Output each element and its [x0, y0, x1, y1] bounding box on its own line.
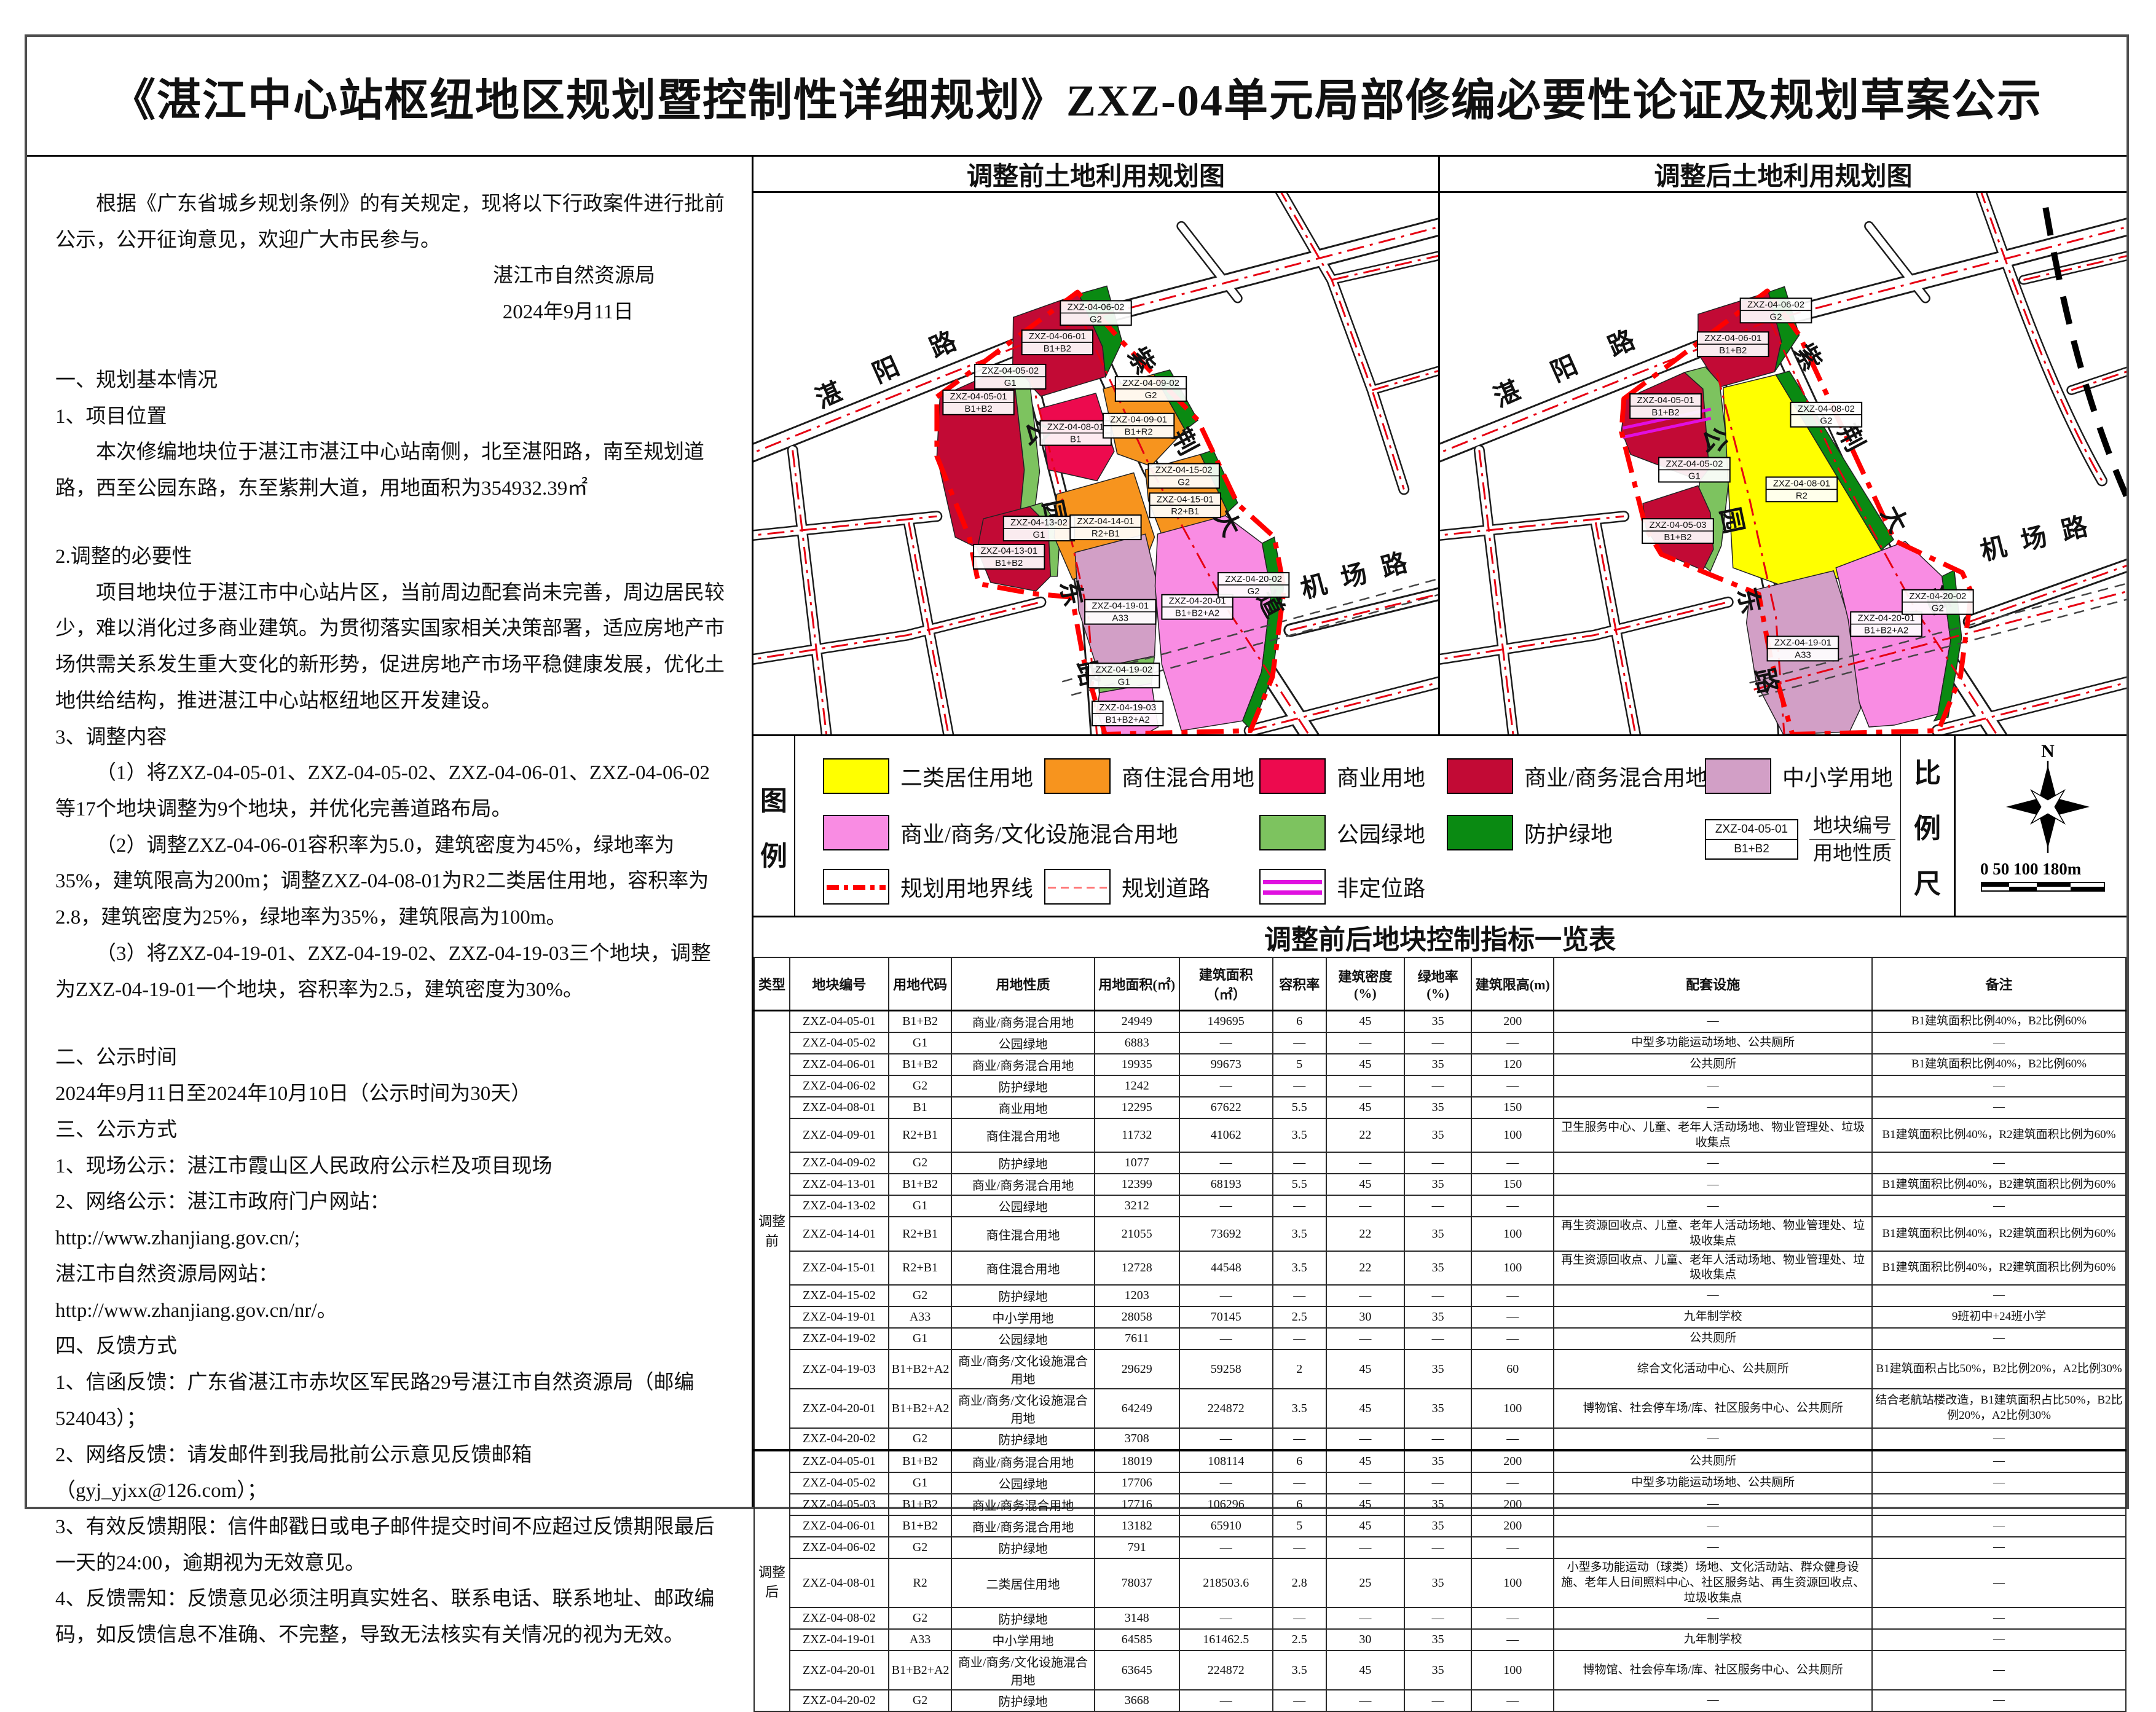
cell: 100 — [1471, 1389, 1554, 1428]
content: 根据《广东省城乡规划条例》的有关规定，现将以下行政案件进行批前公示，公开征询意见… — [27, 155, 2126, 1507]
cell: 6 — [1273, 1450, 1326, 1472]
legend-item: 公园绿地 — [1259, 815, 1425, 850]
cell: 防护绿地 — [951, 1075, 1094, 1097]
cell: — — [1326, 1428, 1404, 1450]
cell: 45 — [1326, 1450, 1404, 1472]
cell: 商业/商务混合用地 — [951, 1054, 1094, 1075]
sample-plot-use: B1+B2 — [1706, 840, 1797, 858]
cell: ZXZ-04-08-02 — [790, 1608, 889, 1629]
cell: — — [1872, 1428, 2126, 1450]
cell: G2 — [889, 1690, 952, 1711]
cell: 106296 — [1179, 1494, 1273, 1515]
parcel-label: ZXZ-04-09-02 — [1122, 378, 1179, 388]
cell: B1建筑面积比例40%，R2建筑面积比例为60% — [1872, 1217, 2126, 1251]
cell: — — [1471, 1032, 1554, 1054]
cell: 200 — [1471, 1011, 1554, 1033]
cell: — — [1404, 1608, 1471, 1629]
caption-land-use: 用地性质 — [1813, 840, 1892, 866]
scale-title-char: 尺 — [1914, 862, 1941, 901]
cell: 中小学用地 — [951, 1306, 1094, 1328]
legend-item-label: 商业/商务混合用地 — [1524, 760, 1707, 792]
cell: — — [1554, 1075, 1872, 1097]
cell: — — [1471, 1152, 1554, 1174]
parcel-label: ZXZ-04-05-03 — [1649, 520, 1706, 530]
parcel-label: ZXZ-04-19-02 — [1095, 664, 1152, 675]
cell: G1 — [889, 1032, 952, 1054]
cell: 公园绿地 — [951, 1328, 1094, 1349]
cell: G1 — [889, 1328, 952, 1349]
table-row: ZXZ-04-20-01B1+B2+A2商业/商务/文化设施混合用地636452… — [754, 1651, 2126, 1690]
cell: 25 — [1326, 1558, 1404, 1608]
cell: — — [1179, 1428, 1273, 1450]
cell: 公园绿地 — [951, 1032, 1094, 1054]
table-row: ZXZ-04-14-01R2+B1商住混合用地21055736923.52235… — [754, 1217, 2126, 1251]
north-label: N — [2041, 741, 2055, 761]
parcel-label: ZXZ-04-20-02 — [1225, 574, 1282, 584]
cell: B1建筑面积比例40%，B2比例60% — [1872, 1054, 2126, 1075]
cell: 45 — [1326, 1651, 1404, 1690]
parcel-label: ZXZ-04-15-01 — [1157, 494, 1214, 505]
cell: 100 — [1471, 1651, 1554, 1690]
parcel-label: ZXZ-04-08-02 — [1798, 404, 1855, 414]
cell: 2.5 — [1273, 1629, 1326, 1651]
cell: ZXZ-04-05-01 — [790, 1011, 889, 1033]
cell: ZXZ-04-20-02 — [790, 1428, 889, 1450]
header-cell: 建筑限高(m) — [1471, 957, 1554, 1011]
cell: 108114 — [1179, 1450, 1273, 1472]
legend-title-char: 图 — [760, 779, 787, 818]
map-title-after: 调整后土地利用规划图 — [1440, 157, 2126, 193]
cell: ZXZ-04-19-01 — [790, 1629, 889, 1651]
cell: R2 — [889, 1558, 952, 1608]
table-row: ZXZ-04-09-01R2+B1商住混合用地11732410623.52235… — [754, 1118, 2126, 1152]
parcel-label: ZXZ-04-13-02 — [1010, 517, 1068, 528]
cell: — — [1554, 1515, 1872, 1537]
cell: 100 — [1471, 1251, 1554, 1285]
parcel-label: B1+B2 — [1044, 344, 1071, 354]
table-row: ZXZ-04-13-01B1+B2商业/商务混合用地12399681935.54… — [754, 1174, 2126, 1195]
table-row: ZXZ-04-19-01A33中小学用地28058701452.53035—九年… — [754, 1306, 2126, 1328]
cell: ZXZ-04-06-02 — [790, 1075, 889, 1097]
cell: ZXZ-04-20-02 — [790, 1690, 889, 1711]
cell: 45 — [1326, 1097, 1404, 1118]
cell: 3148 — [1095, 1608, 1179, 1629]
cell: 35 — [1404, 1011, 1471, 1033]
spacer — [55, 331, 726, 363]
boundary-line-sample — [823, 869, 889, 905]
cell: 35 — [1404, 1097, 1471, 1118]
legend-item-label: 非定位路 — [1337, 871, 1425, 903]
header-cell: 地块编号 — [790, 957, 889, 1011]
cell: — — [1326, 1032, 1404, 1054]
cell: G1 — [889, 1472, 952, 1494]
cell: — — [1326, 1195, 1404, 1217]
cell: B1+B2 — [889, 1450, 952, 1472]
cell: — — [1179, 1152, 1273, 1174]
legend-item: 商住混合用地 — [1044, 758, 1254, 794]
cell: 再生资源回收点、儿童、老年人活动场地、物业管理处、垃圾收集点 — [1554, 1251, 1872, 1285]
table-row: ZXZ-04-09-02G2防护绿地1077——————— — [754, 1152, 2126, 1174]
cell: 45 — [1326, 1054, 1404, 1075]
table-row: ZXZ-04-05-02G1公园绿地6883—————中型多功能运动场地、公共厕… — [754, 1032, 2126, 1054]
cell: ZXZ-04-15-01 — [790, 1251, 889, 1285]
parcel-label: ZXZ-04-14-01 — [1077, 516, 1135, 527]
cell: 中小学用地 — [951, 1629, 1094, 1651]
cell: 24949 — [1095, 1011, 1179, 1033]
cell: 45 — [1326, 1389, 1404, 1428]
cell: — — [1273, 1428, 1326, 1450]
cell: 45 — [1326, 1494, 1404, 1515]
legend-panel: 图例 二类居住用地 商住混合用地 商业用地 商业/商务混合用地 中小学用地 商业… — [753, 736, 1900, 916]
cell: — — [1872, 1651, 2126, 1690]
cell: ZXZ-04-06-01 — [790, 1054, 889, 1075]
cell: — — [1273, 1472, 1326, 1494]
cell: — — [1273, 1285, 1326, 1306]
legend-item-label: 防护绿地 — [1524, 817, 1613, 849]
legend-item: 中小学用地 — [1705, 758, 1893, 794]
table-row: ZXZ-04-06-02G2防护绿地791——————— — [754, 1537, 2126, 1558]
cell: 12295 — [1095, 1097, 1179, 1118]
cell: 41062 — [1179, 1118, 1273, 1152]
notice-line: 项目地块位于湛江市中心站片区，当前周边配套尚未完善，周边居民较少，难以消化过多商… — [55, 575, 726, 720]
parcel-label: ZXZ-04-06-01 — [1704, 333, 1761, 344]
cell: B1+B2 — [889, 1054, 952, 1075]
table-title: 调整前后地块控制指标一览表 — [753, 917, 2126, 957]
cell: 防护绿地 — [951, 1690, 1094, 1711]
cell: 5.5 — [1273, 1097, 1326, 1118]
cell: — — [1179, 1195, 1273, 1217]
cell: G2 — [889, 1075, 952, 1097]
cell: 3.5 — [1273, 1118, 1326, 1152]
cell: ZXZ-04-05-03 — [790, 1494, 889, 1515]
cell: 35 — [1404, 1174, 1471, 1195]
parcel-label: B1+B2+A2 — [1864, 626, 1908, 636]
protective-green-swatch — [1447, 815, 1513, 850]
residential-swatch — [823, 758, 889, 794]
parcel-label: G2 — [1820, 416, 1832, 426]
cell: 防护绿地 — [951, 1428, 1094, 1450]
notice-line: 湛江市自然资源局网站： — [55, 1257, 726, 1293]
legend-item: 规划道路 — [1044, 869, 1210, 905]
cell: 70145 — [1179, 1306, 1273, 1328]
cell: B1建筑面积比例40%，R2建筑面积比例为60% — [1872, 1251, 2126, 1285]
table-row: ZXZ-04-06-01B1+B2商业/商务混合用地13182659105453… — [754, 1515, 2126, 1537]
cell: — — [1326, 1690, 1404, 1711]
caption-plot-number: 地块编号 — [1809, 812, 1895, 840]
notice-line: 根据《广东省城乡规划条例》的有关规定，现将以下行政案件进行批前公示，公开征询意见… — [55, 186, 726, 258]
cell: 防护绿地 — [951, 1537, 1094, 1558]
cell: — — [1554, 1174, 1872, 1195]
legend-item-label: 规划道路 — [1122, 871, 1210, 903]
cell: ZXZ-04-20-01 — [790, 1389, 889, 1428]
map-before: 湛阳路 紫荆大道 公园东路 机场路 ZXZ-04-06-02G2 ZXZ-04-… — [753, 193, 1438, 734]
cell: — — [1471, 1690, 1554, 1711]
cell: 商住混合用地 — [951, 1251, 1094, 1285]
cell: G1 — [889, 1195, 952, 1217]
cell: 7611 — [1095, 1328, 1179, 1349]
cell: 5.5 — [1273, 1174, 1326, 1195]
table-row: ZXZ-04-08-02G2防护绿地3148——————— — [754, 1608, 2126, 1629]
row-group-type: 调整后 — [754, 1450, 790, 1711]
parcel-label: B1+B2+A2 — [1106, 715, 1150, 725]
cell: — — [1326, 1285, 1404, 1306]
header-cell: 建筑面积（㎡） — [1179, 957, 1273, 1011]
parcel-label: B1+B2 — [995, 558, 1023, 568]
cell: 44548 — [1179, 1251, 1273, 1285]
legend-item-label: 商住混合用地 — [1122, 760, 1254, 792]
cell: 3708 — [1095, 1428, 1179, 1450]
cell: — — [1554, 1152, 1872, 1174]
parcel-label: R2+B1 — [1092, 528, 1120, 539]
cell: G2 — [889, 1537, 952, 1558]
notice-heading: 二、公示时间 — [55, 1040, 726, 1076]
cell: 公园绿地 — [951, 1472, 1094, 1494]
cell: — — [1404, 1328, 1471, 1349]
cell: — — [1872, 1515, 2126, 1537]
notice-line: 2、网络公示：湛江市政府门户网站： — [55, 1184, 726, 1220]
cell: — — [1554, 1011, 1872, 1033]
cell: 218503.6 — [1179, 1558, 1273, 1608]
cell: 二类居住用地 — [951, 1558, 1094, 1608]
cell: 35 — [1404, 1558, 1471, 1608]
cell: — — [1273, 1690, 1326, 1711]
legend-item: 商业/商务/文化设施混合用地 — [823, 815, 1178, 850]
parcel-label: ZXZ-04-20-01 — [1169, 596, 1226, 607]
parcel-label: G2 — [1770, 312, 1782, 322]
cell: — — [1554, 1537, 1872, 1558]
parcel-label: ZXZ-04-05-02 — [1666, 458, 1723, 469]
cell: 224872 — [1179, 1651, 1273, 1690]
header-cell: 配套设施 — [1554, 957, 1872, 1011]
legend-item: 规划用地界线 — [823, 869, 1033, 905]
cell: 200 — [1471, 1494, 1554, 1515]
school-swatch — [1705, 758, 1771, 794]
notice-line: 2024年9月11日至2024年10月10日（公示时间为30天） — [55, 1076, 726, 1112]
cell: B1建筑面积比例40%，R2建筑面积比例为60% — [1872, 1118, 2126, 1152]
cell: ZXZ-04-08-01 — [790, 1558, 889, 1608]
parcel-label: G1 — [1688, 471, 1701, 481]
planned-road-sample — [1044, 869, 1111, 905]
notice-line: （3）将ZXZ-04-19-01、ZXZ-04-19-02、ZXZ-04-19-… — [55, 936, 726, 1008]
cell: 3.5 — [1273, 1217, 1326, 1251]
cell: 161462.5 — [1179, 1629, 1273, 1651]
notice-heading: 一、规划基本情况 — [55, 363, 726, 399]
cell: 45 — [1326, 1011, 1404, 1033]
notice-date: 2024年9月11日 — [55, 294, 726, 331]
cell: 小型多功能运动（球类）场地、文化活动站、群众健身设施、老年人日间照料中心、社区服… — [1554, 1558, 1872, 1608]
cell: B1+B2 — [889, 1494, 952, 1515]
cell: 22 — [1326, 1251, 1404, 1285]
cell: ZXZ-04-05-02 — [790, 1472, 889, 1494]
cell: 35 — [1404, 1651, 1471, 1690]
cell: — — [1179, 1472, 1273, 1494]
cell: 45 — [1326, 1515, 1404, 1537]
table-region: 调整前后地块控制指标一览表 类型地块编号用地代码用地性质用地面积(㎡)建筑面积（… — [753, 917, 2126, 1507]
cell: G2 — [889, 1428, 952, 1450]
cell: — — [1326, 1537, 1404, 1558]
cell: — — [1471, 1075, 1554, 1097]
cell: 5 — [1273, 1515, 1326, 1537]
parcel-label: B1+B2 — [964, 404, 992, 414]
cell — [1872, 1494, 2126, 1515]
cell: 200 — [1471, 1450, 1554, 1472]
cell: 博物馆、社会停车场/库、社区服务中心、公共厕所 — [1554, 1389, 1872, 1428]
header-cell: 用地代码 — [889, 957, 952, 1011]
legend-row: 图例 二类居住用地 商住混合用地 商业用地 商业/商务混合用地 中小学用地 商业… — [753, 736, 2126, 917]
cell: B1+B2+A2 — [889, 1651, 952, 1690]
cell: — — [1872, 1032, 2126, 1054]
cell: G2 — [889, 1285, 952, 1306]
cell: — — [1179, 1690, 1273, 1711]
cell: 商业用地 — [951, 1097, 1094, 1118]
cell: 21055 — [1095, 1217, 1179, 1251]
legend-item-label: 二类居住用地 — [900, 760, 1033, 792]
parcel-label: B1+B2 — [1719, 345, 1747, 356]
map-after: 湛阳路 紫荆大道 公园东路 机场路 ZXZ-04-06-02G2 ZXZ-04-… — [1440, 193, 2126, 734]
notice-line: 3、有效反馈期限：信件邮戳日或电子邮件提交时间不应超过反馈期限最后一天的24:0… — [55, 1509, 726, 1581]
cell: 35 — [1404, 1217, 1471, 1251]
cell: — — [1471, 1608, 1554, 1629]
cell: — — [1554, 1608, 1872, 1629]
cell: 45 — [1326, 1349, 1404, 1389]
cell: 九年制学校 — [1554, 1629, 1872, 1651]
cell: B1+B2 — [889, 1011, 952, 1033]
parcel-label: G2 — [1932, 603, 1944, 614]
cell: 65910 — [1179, 1515, 1273, 1537]
legend-item: 商业/商务混合用地 — [1447, 758, 1707, 794]
cell: — — [1471, 1629, 1554, 1651]
cell: B1 — [889, 1097, 952, 1118]
compass-panel: N 0 50 100 180m — [1956, 736, 2126, 916]
cell: 35 — [1404, 1494, 1471, 1515]
cell: 5 — [1273, 1054, 1326, 1075]
north-arrow — [2006, 765, 2090, 849]
cell: — — [1404, 1195, 1471, 1217]
cell: B1建筑面积比例40%，B2建筑面积比例为60% — [1872, 1174, 2126, 1195]
legend-item-label: 公园绿地 — [1337, 817, 1425, 849]
notice-heading: 四、反馈方式 — [55, 1329, 726, 1365]
legend-item: 非定位路 — [1259, 869, 1425, 905]
cell: 公共厕所 — [1554, 1328, 1872, 1349]
parcel-label: ZXZ-04-05-01 — [1637, 395, 1694, 406]
cell: ZXZ-04-13-01 — [790, 1174, 889, 1195]
notice-line: （1）将ZXZ-04-05-01、ZXZ-04-05-02、ZXZ-04-06-… — [55, 755, 726, 827]
cell: — — [1326, 1608, 1404, 1629]
cell: 商业/商务混合用地 — [951, 1494, 1094, 1515]
cell: ZXZ-04-19-03 — [790, 1349, 889, 1389]
table-row: 调整后ZXZ-04-05-01B1+B2商业/商务混合用地18019108114… — [754, 1450, 2126, 1472]
cell: 35 — [1404, 1349, 1471, 1389]
cell: 3.5 — [1273, 1651, 1326, 1690]
table-row: ZXZ-04-08-01B1商业用地12295676225.54535150—— — [754, 1097, 2126, 1118]
commercial-swatch — [1259, 758, 1326, 794]
cell: G2 — [889, 1608, 952, 1629]
cell: — — [1872, 1629, 2126, 1651]
cell: 防护绿地 — [951, 1152, 1094, 1174]
road-label-jichang: 机场路 — [1978, 508, 2106, 567]
table-row: ZXZ-04-06-02G2防护绿地1242——————— — [754, 1075, 2126, 1097]
cell: 公园绿地 — [951, 1195, 1094, 1217]
cell: — — [1404, 1690, 1471, 1711]
parcel-label: B1+B2 — [1651, 407, 1679, 418]
cell: 13182 — [1095, 1515, 1179, 1537]
cell: 商业/商务混合用地 — [951, 1515, 1094, 1537]
table-row: ZXZ-04-19-03B1+B2+A2商业/商务/文化设施混合用地296295… — [754, 1349, 2126, 1389]
cell: — — [1554, 1285, 1872, 1306]
cell: 6883 — [1095, 1032, 1179, 1054]
cell: ZXZ-04-05-02 — [790, 1032, 889, 1054]
plot-code-caption: 地块编号 用地性质 — [1809, 812, 1895, 866]
cell: 99673 — [1179, 1054, 1273, 1075]
cell: — — [1872, 1450, 2126, 1472]
notice-line: 2、网络反馈：请发邮件到我局批前公示意见反馈邮箱（gyj_yjxx@126.co… — [55, 1437, 726, 1509]
parcel-label: G1 — [1033, 530, 1045, 540]
cell: — — [1326, 1075, 1404, 1097]
cell: B1建筑面积占比50%，B2比例20%，A2比例30% — [1872, 1349, 2126, 1389]
cell: — — [1872, 1285, 2126, 1306]
parcel-label: A33 — [1795, 650, 1811, 660]
cell: 22 — [1326, 1118, 1404, 1152]
cell: ZXZ-04-19-01 — [790, 1306, 889, 1328]
cell: — — [1179, 1032, 1273, 1054]
parcel-label: ZXZ-04-06-01 — [1029, 331, 1086, 342]
table-row: ZXZ-04-20-02G2防护绿地3668——————— — [754, 1690, 2126, 1711]
unlocated-road-sample — [1259, 869, 1326, 905]
cell: 35 — [1404, 1118, 1471, 1152]
header-cell: 绿地率(%) — [1404, 957, 1471, 1011]
notice-heading: 3、调整内容 — [55, 720, 726, 756]
table-row: ZXZ-04-20-02G2防护绿地3708——————— — [754, 1428, 2126, 1450]
cell: 17706 — [1095, 1472, 1179, 1494]
cell: 2 — [1273, 1349, 1326, 1389]
cell: 28058 — [1095, 1306, 1179, 1328]
cell: 公共厕所 — [1554, 1054, 1872, 1075]
cell: — — [1471, 1306, 1554, 1328]
parcel-label: ZXZ-04-19-01 — [1092, 601, 1149, 611]
cell: 商住混合用地 — [951, 1217, 1094, 1251]
parcel-label: G1 — [1004, 378, 1017, 388]
cell: ZXZ-04-19-02 — [790, 1328, 889, 1349]
cell: ZXZ-04-08-01 — [790, 1097, 889, 1118]
notice-line: 本次修编地块位于湛江市湛江中心站南侧，北至湛阳路，南至规划道路，西至公园东路，东… — [55, 434, 726, 506]
cell: 再生资源回收点、儿童、老年人活动场地、物业管理处、垃圾收集点 — [1554, 1217, 1872, 1251]
map-panel-after: 调整后土地利用规划图 — [1440, 157, 2126, 734]
cell: B1+B2+A2 — [889, 1349, 952, 1389]
cell: — — [1471, 1472, 1554, 1494]
cell: 60 — [1471, 1349, 1554, 1389]
cell: ZXZ-04-15-02 — [790, 1285, 889, 1306]
cell: 150 — [1471, 1097, 1554, 1118]
cell: 商住混合用地 — [951, 1118, 1094, 1152]
parcel-label: ZXZ-04-19-01 — [1774, 637, 1831, 648]
cell: — — [1179, 1537, 1273, 1558]
cell: 149695 — [1179, 1011, 1273, 1033]
parcel-label: ZXZ-04-20-02 — [1909, 591, 1966, 602]
cell: 商业/商务/文化设施混合用地 — [951, 1349, 1094, 1389]
header-cell: 备注 — [1872, 957, 2126, 1011]
parcel-label: ZXZ-04-06-02 — [1747, 299, 1804, 310]
cell: 59258 — [1179, 1349, 1273, 1389]
parcel-label: G2 — [1178, 477, 1190, 487]
parcel-label: G2 — [1248, 586, 1260, 597]
notice-line: 1、现场公示：湛江市霞山区人民政府公示栏及项目现场 — [55, 1149, 726, 1185]
cell: — — [1471, 1328, 1554, 1349]
scale-title-char: 例 — [1914, 806, 1941, 846]
parcel-label: ZXZ-04-05-02 — [982, 366, 1039, 376]
cell: B1建筑面积比例40%，B2比例60% — [1872, 1011, 2126, 1033]
cell: 11732 — [1095, 1118, 1179, 1152]
cell: 博物馆、社会停车场/库、社区服务中心、公共厕所 — [1554, 1651, 1872, 1690]
